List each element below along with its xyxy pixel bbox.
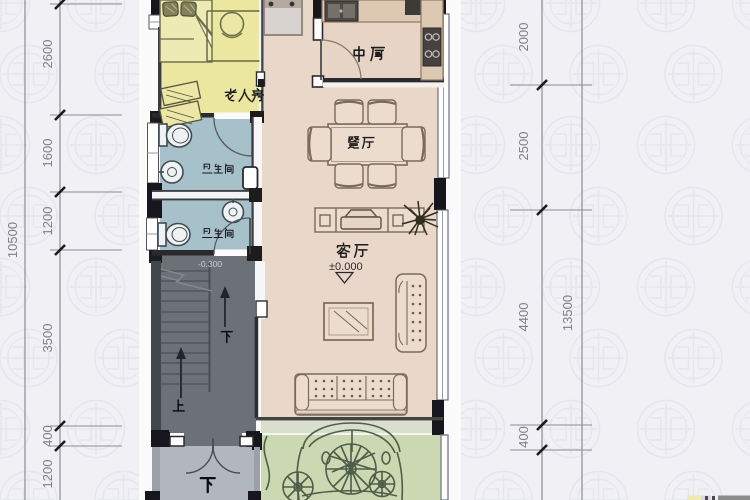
svg-text:2500: 2500 bbox=[516, 132, 531, 161]
svg-text:3500: 3500 bbox=[40, 324, 55, 353]
svg-text:10500: 10500 bbox=[5, 222, 20, 258]
svg-text:4400: 4400 bbox=[516, 303, 531, 332]
svg-text:±0.000: ±0.000 bbox=[329, 261, 363, 273]
svg-text:400: 400 bbox=[40, 425, 55, 447]
svg-text:1200: 1200 bbox=[40, 460, 55, 489]
svg-text:400: 400 bbox=[516, 426, 531, 448]
svg-text:2600: 2600 bbox=[40, 40, 55, 69]
svg-text:1200: 1200 bbox=[40, 207, 55, 236]
svg-text:-0.300: -0.300 bbox=[198, 259, 222, 269]
svg-text:13500: 13500 bbox=[560, 295, 575, 331]
svg-text:2000: 2000 bbox=[516, 23, 531, 52]
svg-text:1600: 1600 bbox=[40, 139, 55, 168]
